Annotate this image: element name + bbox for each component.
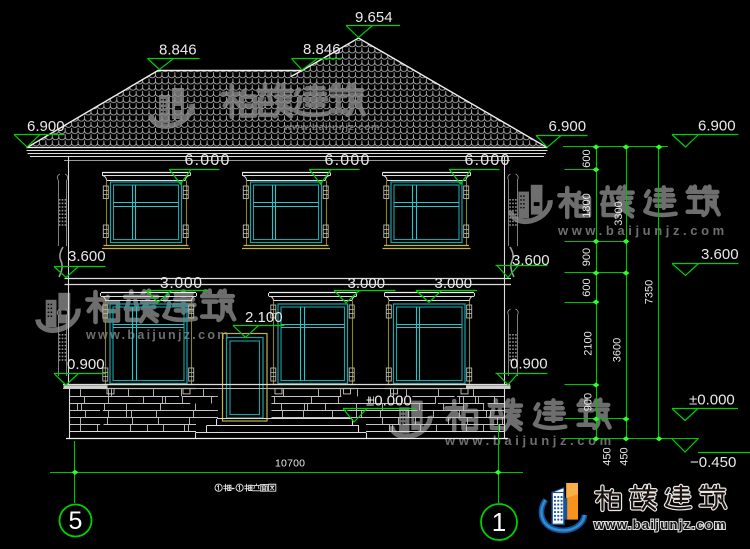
svg-text:6.900: 6.900 — [549, 118, 587, 135]
svg-text:±0.000: ±0.000 — [366, 392, 412, 409]
svg-text:6.900: 6.900 — [27, 118, 65, 135]
svg-text:900: 900 — [583, 393, 595, 411]
svg-text:www.baijunjz.com: www.baijunjz.com — [444, 433, 615, 448]
svg-text:0.900: 0.900 — [67, 356, 105, 373]
svg-text:8.846: 8.846 — [303, 41, 341, 58]
svg-text:450: 450 — [619, 447, 631, 465]
svg-text:6.900: 6.900 — [698, 118, 736, 135]
svg-text:5: 5 — [69, 507, 83, 535]
svg-text:450: 450 — [602, 447, 614, 465]
svg-text:3.600: 3.600 — [512, 252, 550, 269]
svg-text:10700: 10700 — [275, 458, 305, 470]
svg-text:www.baijunjz.com: www.baijunjz.com — [593, 517, 727, 532]
svg-text:1: 1 — [492, 507, 506, 537]
svg-text:0.900: 0.900 — [510, 355, 548, 372]
svg-text:3.000: 3.000 — [435, 275, 473, 292]
svg-text:6.000: 6.000 — [465, 152, 511, 169]
svg-text:±0.000: ±0.000 — [689, 391, 735, 408]
svg-text:3600: 3600 — [612, 338, 624, 362]
svg-text:3.000: 3.000 — [348, 275, 386, 292]
svg-text:www.baijunjz.com: www.baijunjz.com — [283, 122, 380, 133]
svg-text:2.100: 2.100 — [245, 309, 283, 326]
svg-text:−0.450: −0.450 — [690, 454, 736, 471]
svg-text:2100: 2100 — [583, 331, 595, 355]
svg-text:6.000: 6.000 — [185, 152, 231, 169]
svg-text:8.846: 8.846 — [159, 41, 197, 58]
svg-text:6.000: 6.000 — [325, 152, 371, 169]
svg-text:7350: 7350 — [644, 280, 656, 304]
svg-text:3.600: 3.600 — [701, 246, 739, 263]
svg-text:600: 600 — [581, 278, 593, 296]
svg-text:3.000: 3.000 — [160, 275, 203, 292]
svg-text:3300: 3300 — [613, 201, 625, 225]
svg-text:9.654: 9.654 — [355, 9, 393, 26]
svg-text:www.baijunjz.com: www.baijunjz.com — [557, 223, 728, 238]
svg-text:900: 900 — [581, 248, 593, 266]
svg-text:1800: 1800 — [581, 193, 593, 217]
svg-text:3.600: 3.600 — [68, 248, 106, 265]
svg-text:600: 600 — [581, 149, 593, 167]
svg-text:www.baijunjz.com: www.baijunjz.com — [85, 328, 231, 342]
